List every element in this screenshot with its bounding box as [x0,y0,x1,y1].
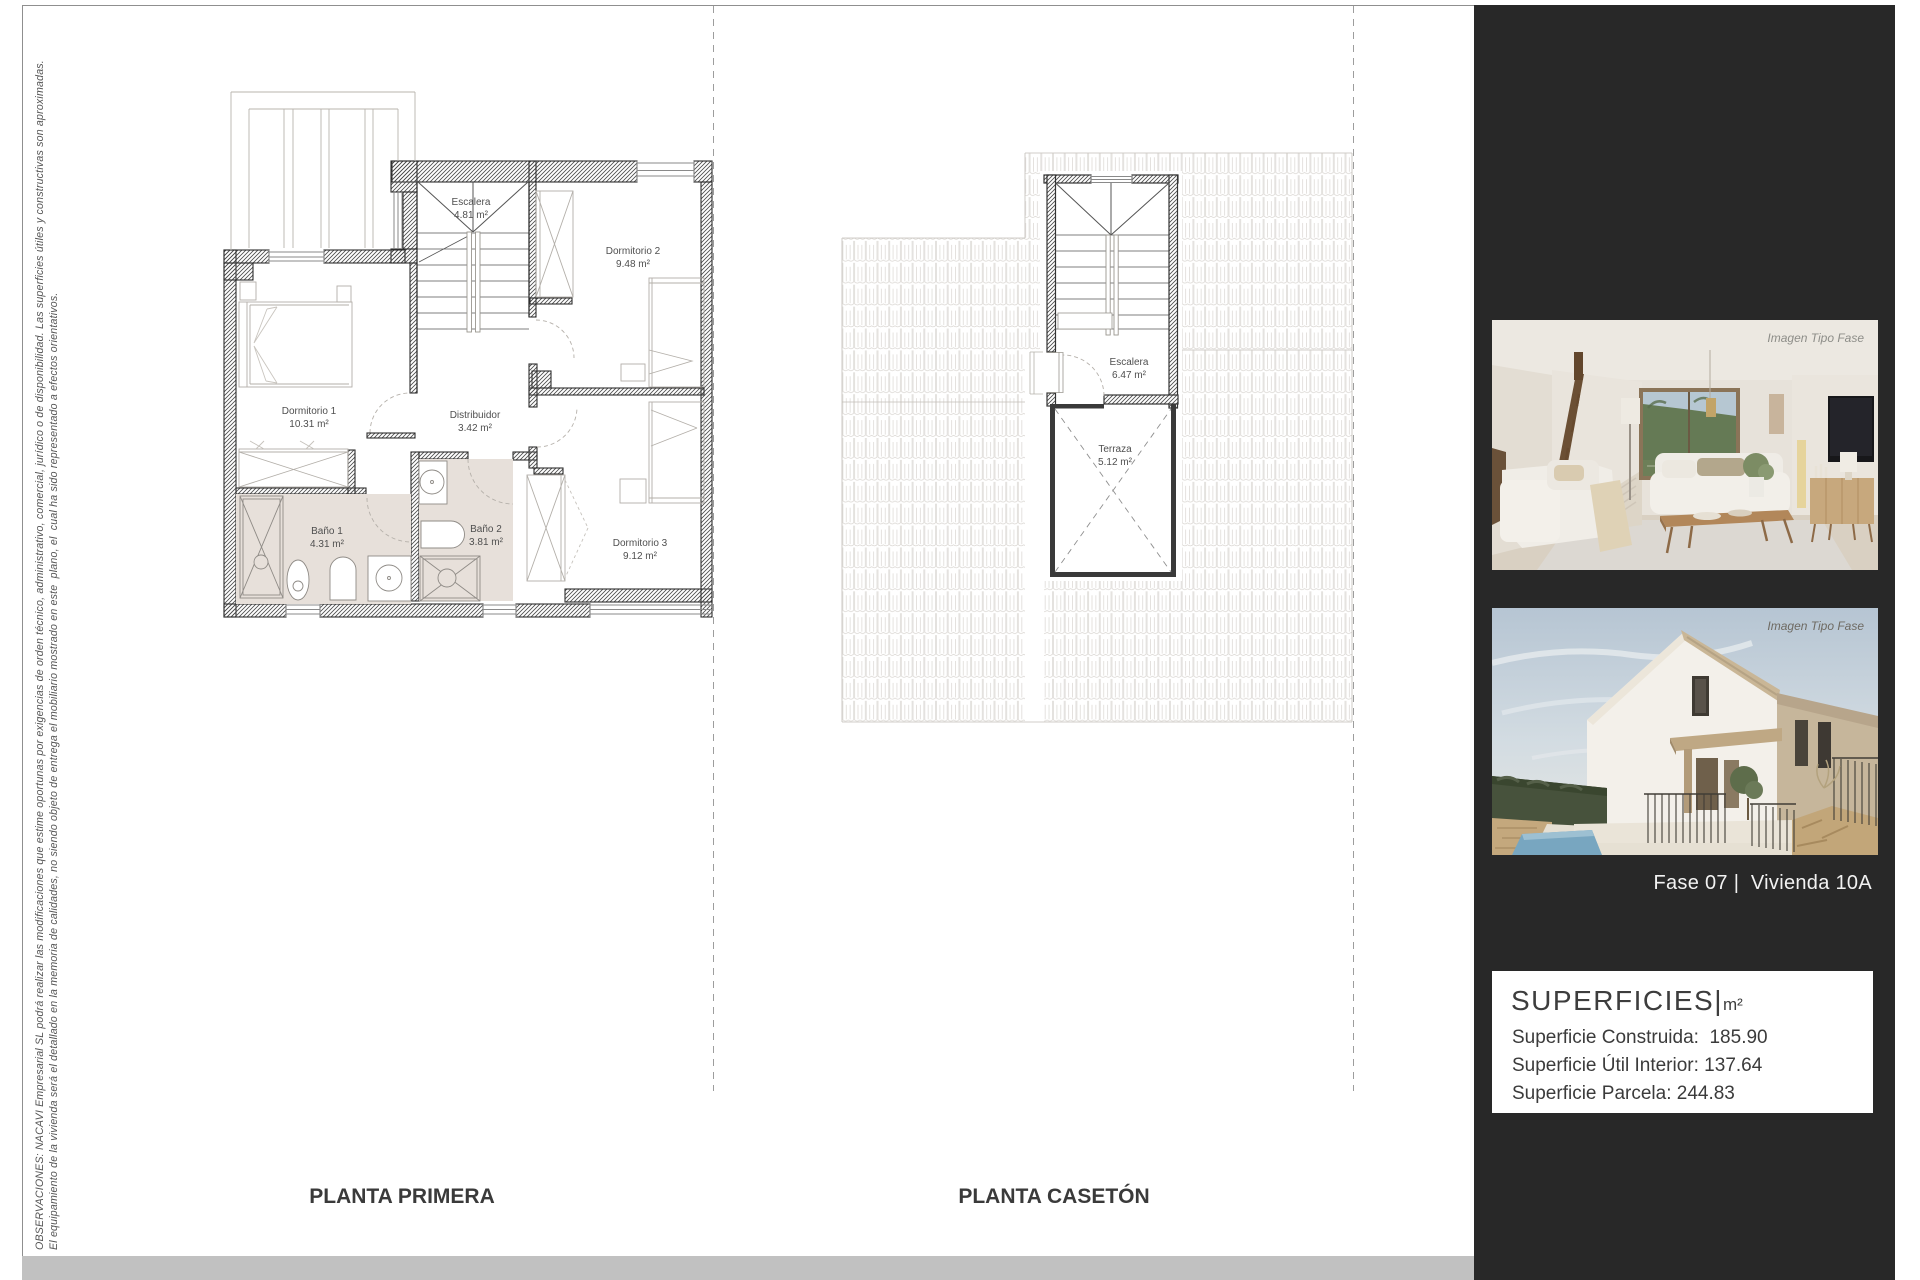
svg-text:3.42 m²: 3.42 m² [458,423,493,434]
svg-text:Baño 1: Baño 1 [311,526,343,537]
svg-text:Distribuidor: Distribuidor [450,410,501,421]
svg-text:3.81 m²: 3.81 m² [469,537,504,548]
svg-text:Terraza: Terraza [1098,444,1132,455]
svg-text:10.31 m²: 10.31 m² [289,419,329,430]
svg-text:Imagen Tipo Fase: Imagen Tipo Fase [1767,331,1864,345]
svg-text:Baño 2: Baño 2 [470,524,502,535]
svg-text:Imagen Tipo Fase: Imagen Tipo Fase [1767,619,1864,633]
svg-text:4.31 m²: 4.31 m² [310,539,345,550]
svg-text:5.12 m²: 5.12 m² [1098,457,1133,468]
svg-text:9.48 m²: 9.48 m² [616,259,651,270]
svg-text:6.47 m²: 6.47 m² [1112,370,1147,381]
svg-text:4.81 m²: 4.81 m² [454,210,489,221]
svg-text:9.12 m²: 9.12 m² [623,551,658,562]
svg-text:Escalera: Escalera [1110,357,1149,368]
svg-text:Dormitorio 3: Dormitorio 3 [613,538,668,549]
svg-text:Escalera: Escalera [452,197,491,208]
svg-text:Dormitorio 1: Dormitorio 1 [282,406,337,417]
svg-text:Dormitorio 2: Dormitorio 2 [606,246,661,257]
